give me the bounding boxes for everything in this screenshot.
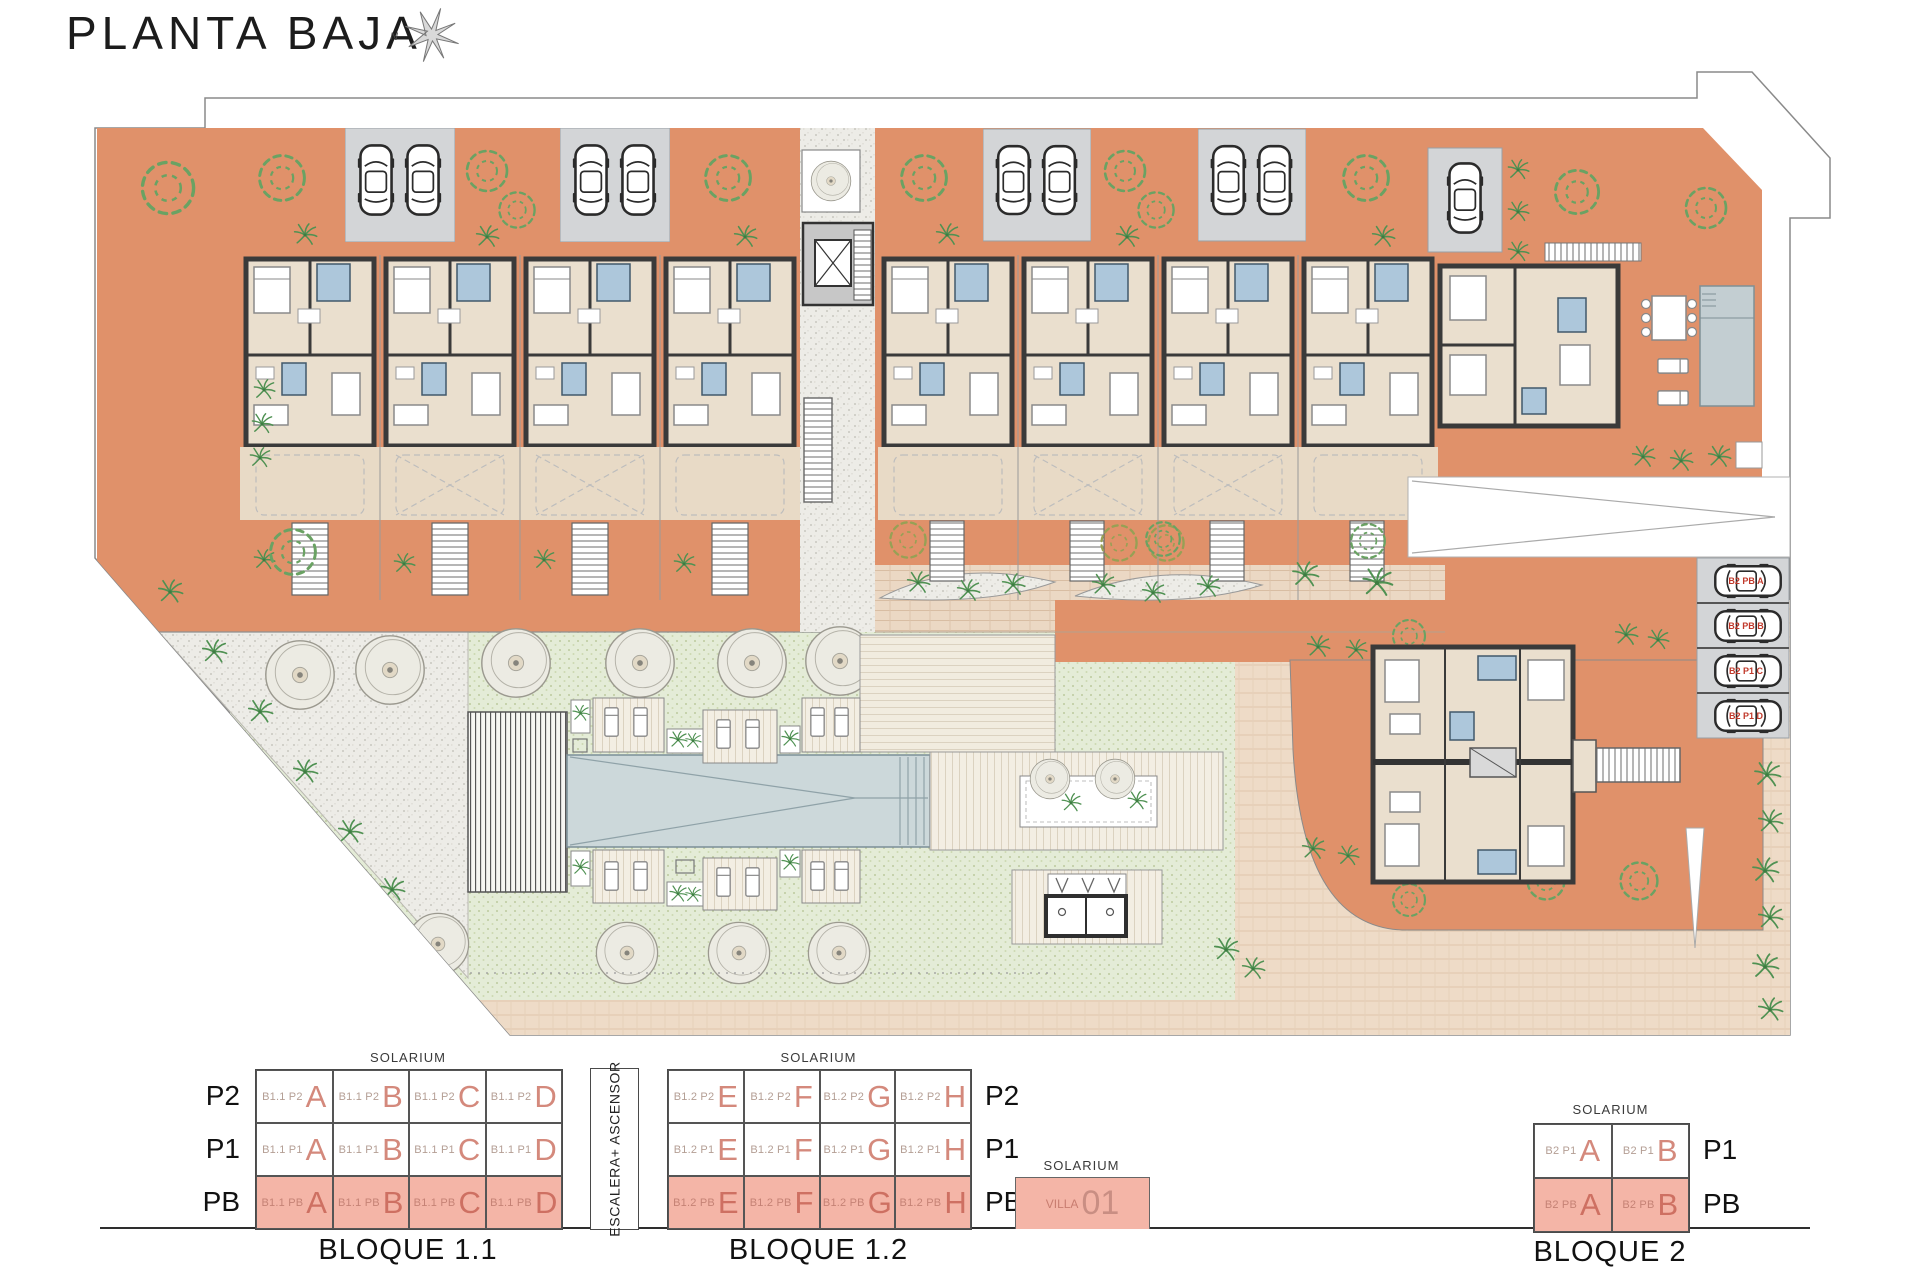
unit-cell: B1.2 PBH	[895, 1176, 971, 1229]
tree-icon	[596, 922, 657, 983]
apartment-unit	[1304, 259, 1432, 446]
stair-elevator-core	[800, 128, 875, 632]
apartment-unit	[246, 259, 374, 446]
solarium-label: SOLARIUM	[1533, 1102, 1688, 1117]
unit-cell: B1.1 P2A	[256, 1070, 333, 1123]
floor-plan-page: PLANTA BAJA N	[0, 0, 1920, 1280]
unit-cell: B2 PBA	[1534, 1178, 1612, 1232]
unit-cell: B1.2 PBG	[820, 1176, 896, 1229]
apartment-unit	[884, 259, 1012, 446]
tree-icon	[718, 629, 786, 697]
floor-label-p1: P1	[188, 1133, 240, 1165]
unit-cell: B1.2 P2E	[668, 1070, 744, 1123]
unit-cell: B1.1 PBC	[409, 1176, 486, 1229]
unit-cell: B1.1 PBB	[333, 1176, 410, 1229]
floor-label-pb: PB	[188, 1186, 240, 1218]
pergola	[468, 712, 567, 892]
apartment-unit	[1024, 259, 1152, 446]
tree-icon	[315, 915, 376, 976]
unit-cell: B1.1 P1D	[486, 1123, 563, 1176]
table-row-pb: B1.2 PBE B1.2 PBF B1.2 PBG B1.2 PBH	[668, 1176, 971, 1229]
bloque-2-name: BLOQUE 2	[1500, 1236, 1720, 1269]
tree-icon	[482, 629, 550, 697]
unit-cell: B1.1 P2D	[486, 1070, 563, 1123]
bloque-1-1-table: B1.1 P2A B1.1 P2B B1.1 P2C B1.1 P2D B1.1…	[255, 1069, 563, 1230]
unit-cell: B1.1 P1B	[333, 1123, 410, 1176]
parking-label: B2 PB B	[1728, 621, 1764, 631]
unit-cell: B1.2 P1E	[668, 1123, 744, 1176]
unit-cell: B1.1 P2C	[409, 1070, 486, 1123]
unit-cell: B2 P1A	[1534, 1124, 1612, 1178]
floor-label-p2: P2	[985, 1080, 1045, 1112]
driveway-ramp	[1408, 477, 1790, 557]
apartment-unit	[666, 259, 794, 446]
table-row-pb: B1.1 PBA B1.1 PBB B1.1 PBC B1.1 PBD	[256, 1176, 562, 1229]
parking-area: B2 PB A B2 PB B B2 P1 C B2 P1 D	[1697, 558, 1789, 738]
unit-cell: B1.2 P2G	[820, 1070, 896, 1123]
tree-icon	[811, 161, 851, 201]
parking-label: B2 P1 C	[1729, 666, 1764, 676]
bloque-2-table: B2 P1A B2 P1B B2 PBA B2 PBB	[1533, 1123, 1690, 1233]
stair-core-box: ESCALERA+ ASCENSOR	[590, 1068, 639, 1230]
bloque-1-2-name: BLOQUE 1.2	[667, 1234, 970, 1267]
parking-label: B2 P1 D	[1729, 711, 1764, 721]
unit-cell: B1.2 P2H	[895, 1070, 971, 1123]
garage-cars-icon	[1198, 129, 1306, 241]
sunbed-icon	[1658, 391, 1688, 405]
parking-label: B2 PB A	[1728, 576, 1764, 586]
garage-cars-icon	[560, 128, 670, 242]
table-row: B2 P1A B2 P1B	[1534, 1124, 1689, 1178]
tree-icon	[606, 629, 674, 697]
table-row: B1.1 P2A B1.1 P2B B1.1 P2C B1.1 P2D	[256, 1070, 562, 1123]
unit-cell: B1.2 P1G	[820, 1123, 896, 1176]
bloque-1-2-table: B1.2 P2E B1.2 P2F B1.2 P2G B1.2 P2H B1.2…	[667, 1069, 972, 1230]
solarium-label: SOLARIUM	[1015, 1158, 1148, 1173]
solarium-label: SOLARIUM	[667, 1050, 970, 1065]
terrace-table	[1652, 296, 1686, 340]
unit-cell: B2 PBB	[1612, 1178, 1690, 1232]
unit-cell: B1.2 P1H	[895, 1123, 971, 1176]
tree-icon	[808, 922, 869, 983]
tree-icon	[708, 922, 769, 983]
unit-cell: B1.1 P2B	[333, 1070, 410, 1123]
unit-cell: B1.1 PBD	[486, 1176, 563, 1229]
floor-label-pb: PB	[1703, 1188, 1763, 1220]
bloque-1-1-name: BLOQUE 1.1	[255, 1234, 561, 1267]
solarium-label: SOLARIUM	[255, 1050, 561, 1065]
entry-stairs	[1596, 748, 1680, 782]
unit-cell: B2 P1B	[1612, 1124, 1690, 1178]
tree-icon	[266, 641, 334, 709]
villa-cell: VILLA 01	[1015, 1177, 1150, 1229]
unit-cell: B1.1 P1A	[256, 1123, 333, 1176]
sunbed-icon	[1658, 359, 1688, 373]
tree-icon	[407, 913, 468, 974]
table-row: B1.1 P1A B1.1 P1B B1.1 P1C B1.1 P1D	[256, 1123, 562, 1176]
garage-cars-icon	[983, 129, 1091, 241]
table-row-pb: B2 PBA B2 PBB	[1534, 1178, 1689, 1232]
floor-label-p1: P1	[1703, 1134, 1763, 1166]
apartment-unit	[1164, 259, 1292, 446]
apartment-unit	[386, 259, 514, 446]
tree-icon	[1030, 759, 1070, 799]
table-row: B1.2 P1E B1.2 P1F B1.2 P1G B1.2 P1H	[668, 1123, 971, 1176]
unit-cell: B1.1 P1C	[409, 1123, 486, 1176]
unit-cell: B1.2 P2F	[744, 1070, 820, 1123]
car-icon	[1447, 163, 1483, 232]
unit-cell: B1.2 PBE	[668, 1176, 744, 1229]
swimming-pool	[567, 755, 930, 847]
unit-cell: B1.2 P1F	[744, 1123, 820, 1176]
villa-pool	[1700, 286, 1754, 406]
table-row: B1.2 P2E B1.2 P2F B1.2 P2G B1.2 P2H	[668, 1070, 971, 1123]
stair-core-label: ESCALERA+ ASCENSOR	[607, 1061, 623, 1236]
unit-cell: B1.2 PBF	[744, 1176, 820, 1229]
garage-cars-icon	[345, 128, 455, 242]
apartment-unit	[526, 259, 654, 446]
tree-icon	[1095, 759, 1135, 799]
site-plan: B2 PB A B2 PB B B2 P1 C B2 P1 D	[0, 0, 1920, 1045]
unit-cell: B1.1 PBA	[256, 1176, 333, 1229]
floor-label-p2: P2	[188, 1080, 240, 1112]
tree-icon	[356, 636, 424, 704]
